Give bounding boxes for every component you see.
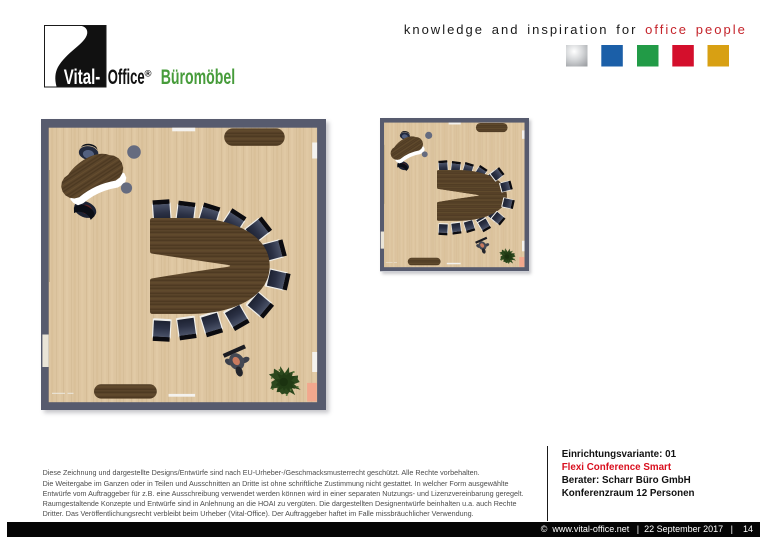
svg-text:Vital-Office®Büromöbel: Vital-Office®Büromöbel — [64, 66, 235, 89]
